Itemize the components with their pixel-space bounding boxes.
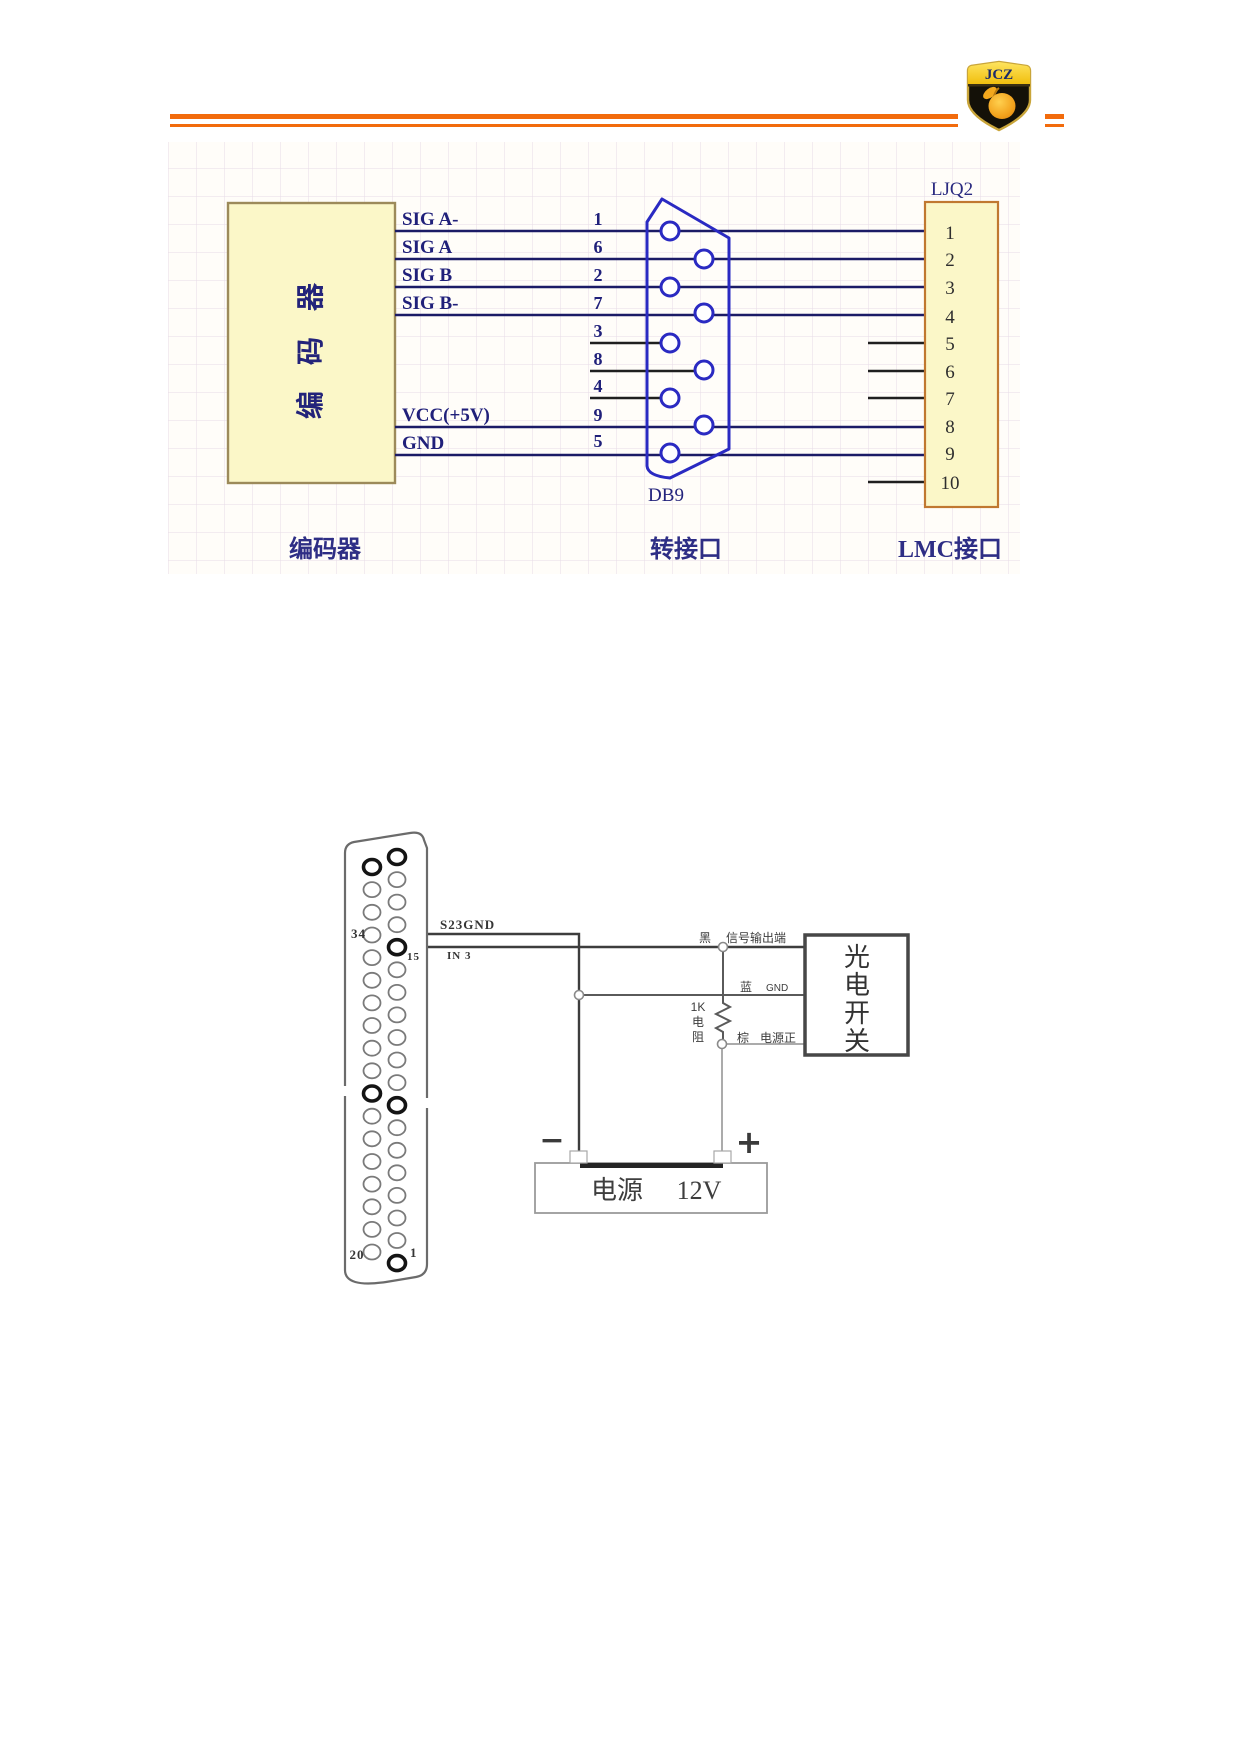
s23gnd-label: S23GND	[440, 917, 495, 932]
db9-pin-number: 1	[594, 209, 603, 229]
manual-page: JCZ 编码器	[0, 0, 1240, 1754]
db9-pin-3	[661, 334, 679, 352]
resistor-1k	[716, 1000, 730, 1040]
db37-pin	[364, 950, 381, 965]
lmc-pin-number: 1	[945, 223, 955, 244]
blue-wire-label: 蓝	[740, 980, 752, 994]
psu-voltage: 12V	[677, 1176, 722, 1205]
db37-pin	[389, 1211, 406, 1226]
db9-pin-1	[661, 222, 679, 240]
sensor-char: 光	[844, 943, 870, 972]
db37-pin	[364, 1154, 381, 1169]
lmc-pin-number: 6	[945, 362, 955, 383]
db37-edge-notch-right	[425, 1098, 431, 1108]
db9-pin-2	[661, 278, 679, 296]
db37-pin	[389, 1075, 406, 1090]
lmc-pin-number: 7	[945, 389, 955, 410]
db37-pin	[389, 940, 406, 955]
db9-pin-number: 6	[594, 237, 603, 257]
caption-adapter: 转接口	[650, 535, 722, 563]
signal-label-sig-a-minus: SIG A-	[402, 209, 459, 230]
resistor-label-dian: 电	[692, 1015, 704, 1029]
psu-box	[535, 1163, 767, 1213]
resistor-label-1k: 1K	[691, 1000, 706, 1014]
db37-pin	[389, 1143, 406, 1158]
db37-pin34-label: 34	[351, 926, 366, 941]
db37-pin	[364, 1131, 381, 1146]
db9-pin-5	[661, 444, 679, 462]
caption-lmc: LMC接口	[898, 536, 1002, 563]
db9-pin-number: 9	[594, 405, 603, 425]
db37-pin	[389, 1256, 406, 1271]
db37-pin	[364, 1245, 381, 1260]
db37-pin	[364, 1109, 381, 1124]
db9-pin-4	[661, 389, 679, 407]
db9-pin-number: 8	[594, 349, 603, 369]
db9-pin-9	[695, 416, 713, 434]
db37-pin1-label: 1	[410, 1245, 418, 1260]
brown-wire-label: 棕	[737, 1030, 749, 1045]
db37-pin15-label: 15	[407, 951, 420, 963]
lmc-connector-name: LJQ2	[931, 179, 973, 200]
db37-pin	[389, 1098, 406, 1113]
db9-pin-number: 3	[594, 321, 603, 341]
db37-pin	[364, 905, 381, 920]
db9-pin-number: 5	[594, 431, 603, 451]
psu-name: 电源	[591, 1176, 643, 1205]
db37-pin	[389, 962, 406, 977]
db37-pin	[389, 985, 406, 1000]
resistor-label-zu: 阻	[692, 1030, 704, 1044]
db37-pin	[389, 1007, 406, 1022]
lmc-pin-number: 8	[945, 417, 955, 438]
db37-pin	[389, 1165, 406, 1180]
db9-pin-number: 2	[594, 265, 603, 285]
db37-connector-shape	[345, 833, 427, 1284]
signal-label-sig-b-minus: SIG B-	[402, 293, 459, 314]
sensor-char: 关	[844, 1027, 870, 1056]
signal-label-gnd: GND	[402, 433, 444, 454]
lmc-pin-number: 5	[945, 334, 955, 355]
db37-sensor-diagram: 34 15 20 1 S23GND IN 3 黑 信号输出端 蓝 GND 棕 电…	[341, 833, 908, 1284]
db9-label: DB9	[648, 485, 684, 506]
signal-label-vcc: VCC(+5V)	[402, 405, 490, 426]
db37-pin	[389, 1120, 406, 1135]
db9-pin-7	[695, 304, 713, 322]
db37-pin	[364, 1177, 381, 1192]
black-wire-desc: 信号输出端	[726, 930, 786, 945]
db9-pin-8	[695, 361, 713, 379]
black-wire-label: 黑	[699, 931, 711, 945]
signal-label-sig-b: SIG B	[402, 265, 452, 286]
db37-pin	[364, 995, 381, 1010]
db37-pin	[389, 872, 406, 887]
db37-pin	[364, 973, 381, 988]
db37-pin	[389, 917, 406, 932]
db37-pin	[364, 882, 381, 897]
encoder-db9-lmc-diagram: 编码器	[168, 142, 1020, 574]
db37-pin	[364, 1018, 381, 1033]
db37-pin	[389, 1030, 406, 1045]
db37-pin	[364, 1041, 381, 1056]
plus-sign: +	[736, 1123, 763, 1161]
in3-label: IN 3	[447, 950, 471, 962]
signal-label-sig-a: SIG A	[402, 237, 452, 258]
db9-pin-6	[695, 250, 713, 268]
minus-sign: −	[539, 1123, 564, 1158]
lmc-connector-box	[925, 202, 998, 507]
psu-terminal-minus	[570, 1151, 587, 1163]
brown-wire-desc: 电源正	[760, 1031, 796, 1045]
db37-pin20-label: 20	[350, 1247, 365, 1262]
sensor-char: 开	[844, 999, 870, 1028]
lmc-pin-number: 3	[945, 278, 955, 299]
db37-pin	[389, 1233, 406, 1248]
db37-pin	[389, 1053, 406, 1068]
encoder-box-label: 编码器	[294, 257, 327, 419]
junction-positive	[718, 1040, 727, 1049]
psu-bus-bar	[580, 1163, 723, 1168]
db37-pin	[364, 860, 381, 875]
db37-pin	[364, 1222, 381, 1237]
lmc-pin-number: 10	[941, 473, 960, 494]
db37-pin	[364, 928, 381, 943]
caption-encoder: 编码器	[289, 535, 362, 563]
db37-pin	[364, 1199, 381, 1214]
db37-pin	[364, 1063, 381, 1078]
sensor-char: 电	[844, 971, 870, 1000]
lmc-pin-number: 9	[945, 444, 955, 465]
lmc-pin-number: 2	[945, 250, 955, 271]
wiring-diagrams: 编码器	[0, 0, 1240, 1754]
psu-terminal-plus	[714, 1151, 731, 1163]
db37-pin	[389, 850, 406, 865]
db37-edge-notch-left	[341, 1086, 347, 1096]
junction-gnd	[575, 991, 584, 1000]
db9-pin-number: 4	[594, 376, 603, 396]
db9-pin-number: 7	[594, 293, 603, 313]
blue-wire-desc: GND	[766, 983, 788, 994]
lmc-pin-number: 4	[945, 307, 955, 328]
db37-pin	[389, 1188, 406, 1203]
db37-pin	[364, 1086, 381, 1101]
db37-pin	[389, 895, 406, 910]
